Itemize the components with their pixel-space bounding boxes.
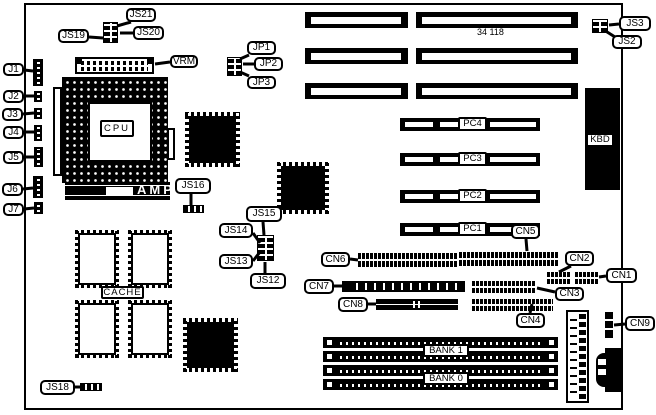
- label-pc4: PC4: [458, 117, 487, 131]
- label-cpu: CPU: [100, 120, 134, 137]
- label-cache: CACHE: [101, 286, 144, 299]
- label-cn6: CN6: [321, 252, 350, 267]
- label-js19: JS19: [58, 29, 89, 43]
- label-j6: J6: [2, 183, 23, 196]
- label-js16: JS16: [175, 178, 211, 194]
- label-pc1: PC1: [458, 222, 487, 236]
- label-js21: JS21: [126, 8, 156, 22]
- label-js3: JS3: [619, 16, 651, 31]
- label-js18: JS18: [40, 380, 75, 395]
- label-amp: AMP: [136, 183, 176, 196]
- label-cn4: CN4: [516, 313, 545, 328]
- label-j7: J7: [3, 203, 24, 216]
- callout-layer: JS21JS20JS19VRMJ1J2J3J4J5J6J7CPUAMPJS16C…: [0, 0, 656, 415]
- label-j4: J4: [3, 126, 24, 139]
- label-bank0: BANK 0: [423, 372, 469, 385]
- label-vrm: VRM: [170, 55, 198, 68]
- label-jp2: JP2: [254, 57, 283, 71]
- label-pc2: PC2: [458, 189, 487, 203]
- label-cn3: CN3: [555, 287, 584, 301]
- label-j5: J5: [3, 151, 24, 164]
- motherboard-diagram: JS21JS20JS19VRMJ1J2J3J4J5J6J7CPUAMPJS16C…: [0, 0, 656, 415]
- label-cn7: CN7: [304, 279, 334, 294]
- label-js13: JS13: [219, 254, 253, 269]
- label-js20: JS20: [133, 26, 164, 40]
- label-j2: J2: [3, 90, 24, 103]
- label-jp3: JP3: [247, 76, 276, 89]
- label-j3: J3: [2, 108, 23, 121]
- label-cn9: CN9: [625, 316, 655, 331]
- label-cn1: CN1: [606, 268, 637, 283]
- label-js2: JS2: [612, 35, 642, 49]
- label-js12: JS12: [250, 273, 286, 289]
- label-pc3: PC3: [458, 152, 487, 166]
- label-board-number: 34 118: [476, 28, 505, 37]
- label-jp1: JP1: [247, 41, 276, 55]
- label-js14: JS14: [219, 223, 253, 238]
- label-js15: JS15: [246, 206, 282, 222]
- label-bank1: BANK 1: [423, 344, 469, 357]
- label-kbd: KBD: [586, 133, 614, 147]
- label-cn2: CN2: [565, 251, 594, 266]
- label-j1: J1: [3, 63, 24, 76]
- label-cn8: CN8: [338, 297, 368, 312]
- label-cn5: CN5: [511, 224, 540, 239]
